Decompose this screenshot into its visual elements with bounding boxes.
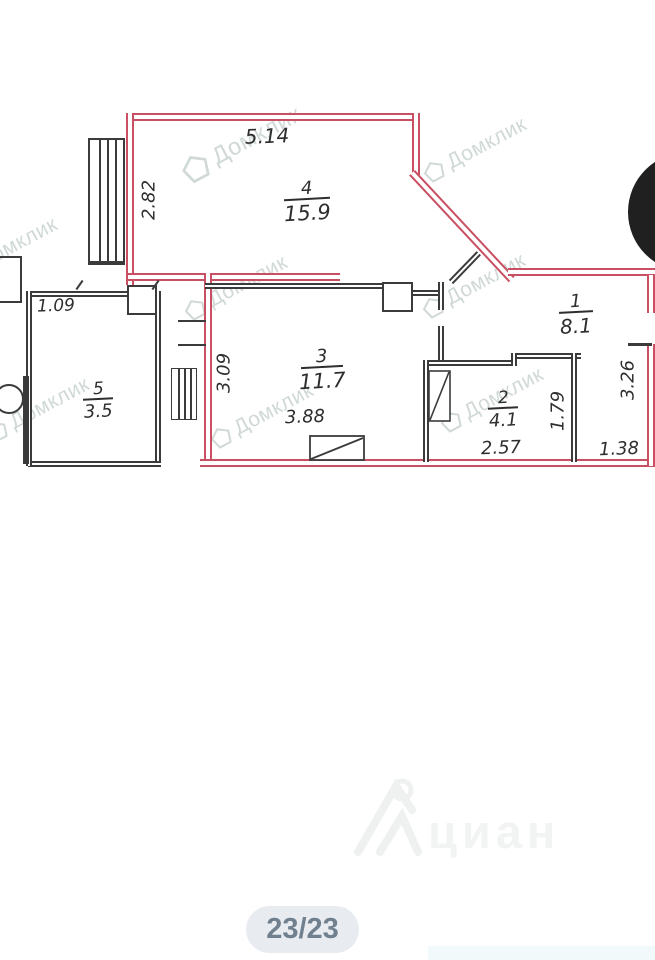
wall-segment [423,360,517,366]
wall-stub [0,256,22,258]
stairwell-line [107,140,109,261]
dim-tick [76,280,84,290]
dimension: 3.09 [214,353,235,393]
cian-watermark: циан [350,772,580,857]
room-number: 1 [570,294,582,311]
wall-segment [438,326,444,363]
cian-watermark-text: циан [428,804,560,859]
domklik-watermark: Домклик [419,113,531,188]
domklik-logo-icon [176,149,215,188]
vent-shaft [382,282,413,312]
room-number: 5 [92,381,104,398]
wall-segment [155,291,161,466]
radiator-line [190,369,192,419]
room-label-3: 3 11.7 [298,349,346,393]
dimension: 1.79 [548,391,569,431]
cian-logo-icon [350,772,430,857]
window-line [178,344,206,346]
camera-dot [628,152,655,272]
stairwell-line [99,140,101,261]
room-area: 3.5 [83,400,113,422]
wall-segment [128,113,418,121]
wall-segment [508,268,655,276]
stairwell-line [115,140,117,261]
room-area: 4.1 [488,409,518,431]
wall-segment [126,113,134,285]
dimension: 3.26 [618,360,639,400]
wall-segment [128,273,340,281]
wall-segment [412,113,420,175]
appliance-box [309,435,366,462]
page-counter-text: 23/23 [266,913,339,946]
wall-segment [438,282,444,310]
dimension: 5.14 [244,123,289,149]
room-area: 11.7 [298,368,346,394]
radiator-line [184,369,186,419]
watermark-strip [428,946,655,960]
wall-stub [20,256,22,303]
wall-segment [23,376,29,464]
wall-segment [204,273,212,466]
door-leaf [428,370,452,423]
dimension: 1.09 [37,295,76,316]
dimension: 2.82 [139,180,160,220]
dimension: 2.57 [481,437,522,459]
page-counter-badge: 23/23 [246,906,359,953]
room-number: 2 [497,390,509,407]
room-label-2: 2 4.1 [481,390,525,431]
room-label-4: 4 15.9 [281,181,333,225]
room-number: 4 [301,181,313,198]
gallery-image[interactable]: Домклик Домклик Домклик Домклик Домклик … [0,0,655,960]
room-label-5: 5 3.5 [78,381,118,422]
room-label-1: 1 8.1 [556,294,596,338]
domklik-watermark-text: Домклик [443,113,531,175]
room-number: 3 [316,349,328,366]
domklik-watermark: Домклик [0,213,62,288]
room-area: 8.1 [559,313,592,339]
wall-stub [0,301,22,303]
room-area: 15.9 [283,200,331,226]
wall-segment [647,344,655,466]
stairwell-base [88,261,125,265]
door-jamb [628,343,652,346]
dimension: 3.88 [285,406,326,428]
wall-segment [511,353,517,366]
window-line [178,320,206,322]
wall-segment [205,283,382,289]
domklik-watermark-text: Домклик [204,251,292,313]
dimension: 1.38 [599,438,640,460]
wall-segment [647,275,655,313]
wall-segment [28,461,161,467]
domklik-watermark-text: Домклик [0,213,62,275]
wall-segment [571,353,577,462]
radiator-line [178,369,180,419]
